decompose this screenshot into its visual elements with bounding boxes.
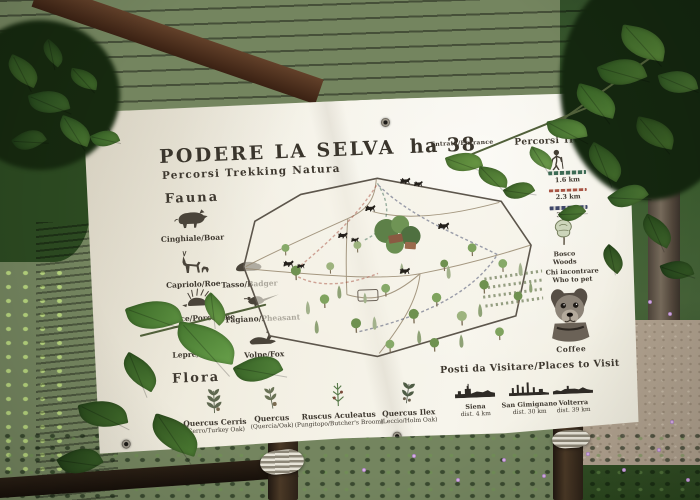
tree-icon <box>551 217 576 246</box>
flower <box>657 448 661 452</box>
photo-scene: PODERE LA SELVAha 38 Percorsi Trekking N… <box>0 0 700 500</box>
woods-block: Bosco Woods <box>539 217 589 267</box>
oak-sprig-icon <box>258 384 284 412</box>
flower <box>586 452 590 456</box>
roe-deer-icon <box>174 248 211 275</box>
route-length: 2.3 km <box>546 192 590 202</box>
flower <box>456 478 460 482</box>
grommet <box>122 439 131 448</box>
flower <box>686 478 690 482</box>
fauna-item-boar: Cinghiale/Boar <box>149 205 234 244</box>
place-distance: dist. 39 km <box>542 405 606 415</box>
flora-heading: Flora <box>172 370 221 387</box>
trail-sign-banner: PODERE LA SELVAha 38 Percorsi Trekking N… <box>83 89 641 456</box>
butchers-broom-sprig-icon <box>325 381 350 408</box>
place-volterra: Volterra dist. 39 km <box>540 376 605 415</box>
holm-oak-sprig-icon <box>395 379 420 406</box>
map-boundary <box>240 172 535 361</box>
flower <box>670 420 674 424</box>
siena-skyline-icon <box>453 381 496 399</box>
grommet <box>381 118 390 127</box>
dog-photo <box>543 285 597 343</box>
woods-label-en: Woods <box>541 257 589 267</box>
meet-block: Chi incontrare Who to pet <box>530 266 615 286</box>
flower <box>648 300 652 304</box>
volterra-skyline-icon <box>551 377 594 395</box>
fauna-label: Cinghiale/Boar <box>150 232 234 244</box>
route-length: 1.6 km <box>545 174 589 184</box>
flora-item-holm-oak: Quercus Ilex (Leccio/Holm Oak) <box>357 378 459 426</box>
dog-name: Coffee <box>539 343 603 355</box>
boar-icon <box>173 206 210 229</box>
flower <box>622 468 626 472</box>
fauna-heading: Fauna <box>165 190 220 207</box>
flower <box>542 474 546 478</box>
flower <box>668 312 672 316</box>
flower <box>502 458 506 462</box>
flower <box>362 468 366 472</box>
flower <box>412 454 416 458</box>
